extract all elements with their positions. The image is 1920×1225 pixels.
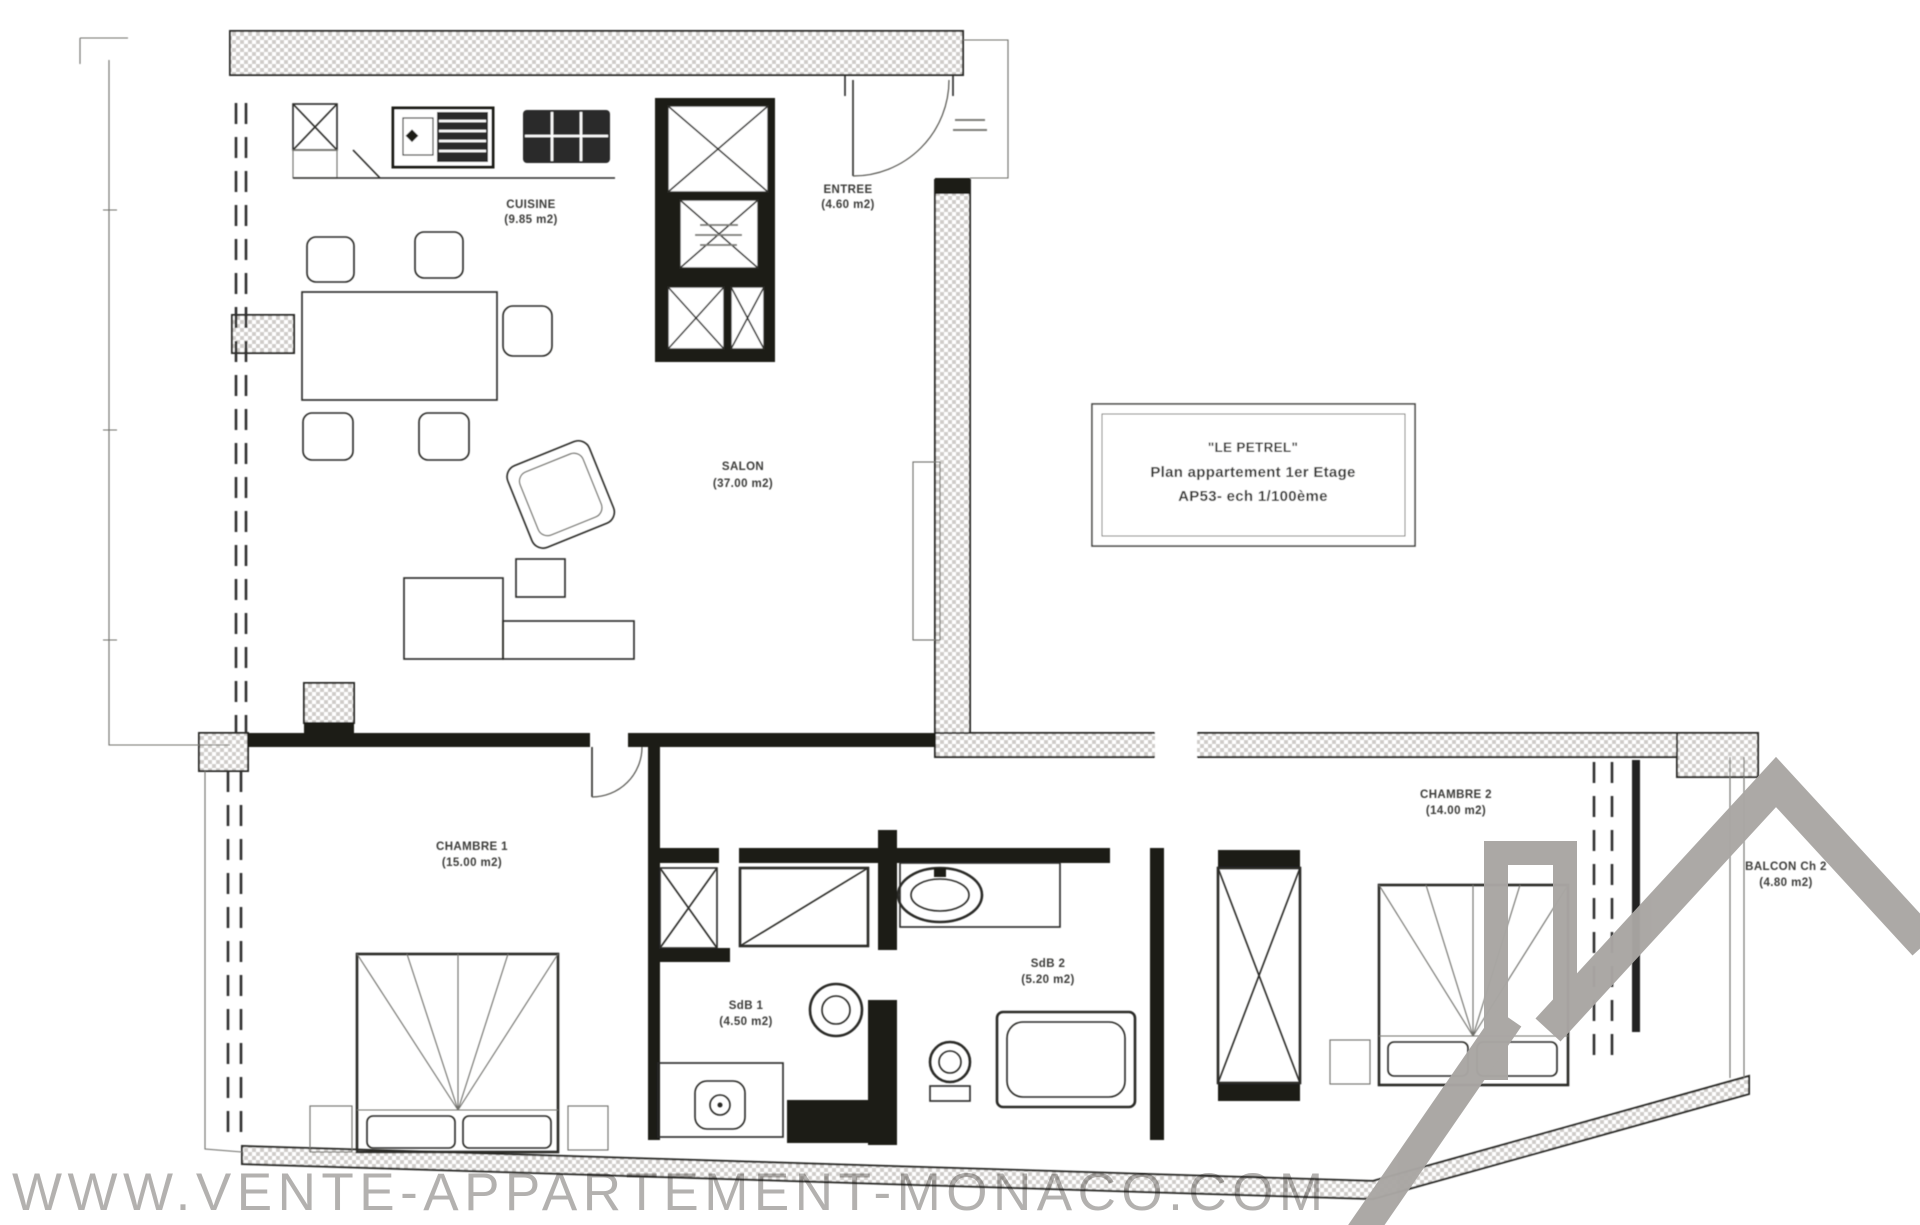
wall-corner-right — [1677, 733, 1758, 777]
balcony-left — [80, 38, 230, 745]
window-salon-dashed — [236, 103, 246, 733]
title-block: "LE PETREL" Plan appartement 1er Etage A… — [1092, 404, 1415, 546]
title-line2: Plan appartement 1er Etage — [1150, 464, 1355, 481]
room-area-salon: (37.00 m2) — [713, 478, 773, 490]
wardrobe-chambre2 — [1218, 868, 1300, 1083]
side-table-icon — [516, 559, 565, 597]
room-label-sdb1: SdB 1 — [729, 1000, 764, 1012]
room-label-balcon: BALCON Ch 2 — [1745, 861, 1827, 873]
pillow-icon — [463, 1116, 551, 1148]
room-area-cuisine: (9.85 m2) — [504, 214, 557, 226]
wall-right-cap — [935, 178, 970, 194]
chambre1 — [205, 747, 642, 1152]
wall-pier-low-cap — [304, 723, 354, 733]
shaft-column — [655, 98, 775, 362]
floor-plan-page: "LE PETREL" Plan appartement 1er Etage A… — [0, 0, 1920, 1225]
chair-icon — [419, 413, 469, 460]
room-label-sdb2: SdB 2 — [1031, 958, 1066, 970]
room-area-entree: (4.60 m2) — [821, 199, 874, 211]
logo-roof-chevron-icon — [1548, 782, 1920, 1030]
wall-pier-mid — [232, 315, 294, 353]
chair-icon — [503, 306, 552, 356]
bathtub-icon — [997, 1012, 1135, 1107]
chair-icon — [303, 413, 353, 460]
room-label-salon: SALON — [722, 461, 764, 473]
nightstand-icon — [310, 1106, 352, 1152]
balcony-left-edge — [109, 60, 230, 745]
window-chambre1-dashed — [228, 771, 241, 1143]
wall-pier-low — [304, 683, 354, 723]
room-label-chambre2: CHAMBRE 2 — [1420, 789, 1492, 801]
exterior-walls — [199, 31, 1758, 1199]
toilet-icon — [930, 1042, 970, 1082]
room-area-sdb2: (5.20 m2) — [1021, 974, 1074, 986]
room-label-entree: ENTREE — [823, 184, 872, 196]
room-label-chambre1: CHAMBRE 1 — [436, 841, 508, 853]
interior-walls — [248, 733, 1300, 1145]
room-area-balcon: (4.80 m2) — [1759, 877, 1812, 889]
title-line3: AP53- ech 1/100ème — [1178, 488, 1328, 505]
living-room — [302, 232, 940, 659]
balcony-left-corner — [80, 38, 128, 64]
nightstand-icon — [568, 1106, 608, 1150]
sofa-icon — [404, 578, 503, 659]
dining-table-icon — [302, 292, 497, 400]
pillow-icon — [367, 1116, 455, 1148]
room-area-chambre2: (14.00 m2) — [1426, 805, 1486, 817]
door-swing-arc — [592, 747, 642, 797]
door-opening-wing — [1155, 731, 1197, 759]
room-labels: CUISINE (9.85 m2) ENTREE (4.60 m2) SALON… — [436, 184, 1827, 1028]
room-label-cuisine: CUISINE — [506, 199, 555, 211]
sdb2 — [898, 863, 1135, 1107]
wall-top — [230, 31, 963, 75]
watermark: WWW.VENTE-APPARTEMENT-MONACO.COM — [12, 1162, 1328, 1223]
wall-right-upper — [935, 180, 970, 735]
chambre2 — [1330, 885, 1568, 1085]
kitchen — [293, 104, 615, 178]
balcony-railing-ticks — [103, 210, 117, 640]
chair-icon — [415, 232, 463, 278]
chair-icon — [307, 237, 354, 282]
room-area-sdb1: (4.50 m2) — [719, 1016, 772, 1028]
title-line1: "LE PETREL" — [1208, 440, 1298, 455]
wall-wing-top — [935, 733, 1677, 757]
wall-corner-left — [199, 733, 248, 771]
armchair-icon — [503, 437, 618, 552]
nightstand-icon — [1330, 1040, 1370, 1084]
counter-icon — [900, 863, 1060, 927]
floor-plan-svg: "LE PETREL" Plan appartement 1er Etage A… — [0, 0, 1920, 1225]
window-frame — [1632, 760, 1640, 1032]
sofa-icon — [503, 621, 634, 659]
toilet-icon — [810, 984, 862, 1036]
room-area-chambre1: (15.00 m2) — [442, 857, 502, 869]
window-chambre2-dashed — [1594, 762, 1612, 1066]
vanity-icon — [658, 1063, 783, 1137]
door-swing-arc — [853, 80, 949, 176]
